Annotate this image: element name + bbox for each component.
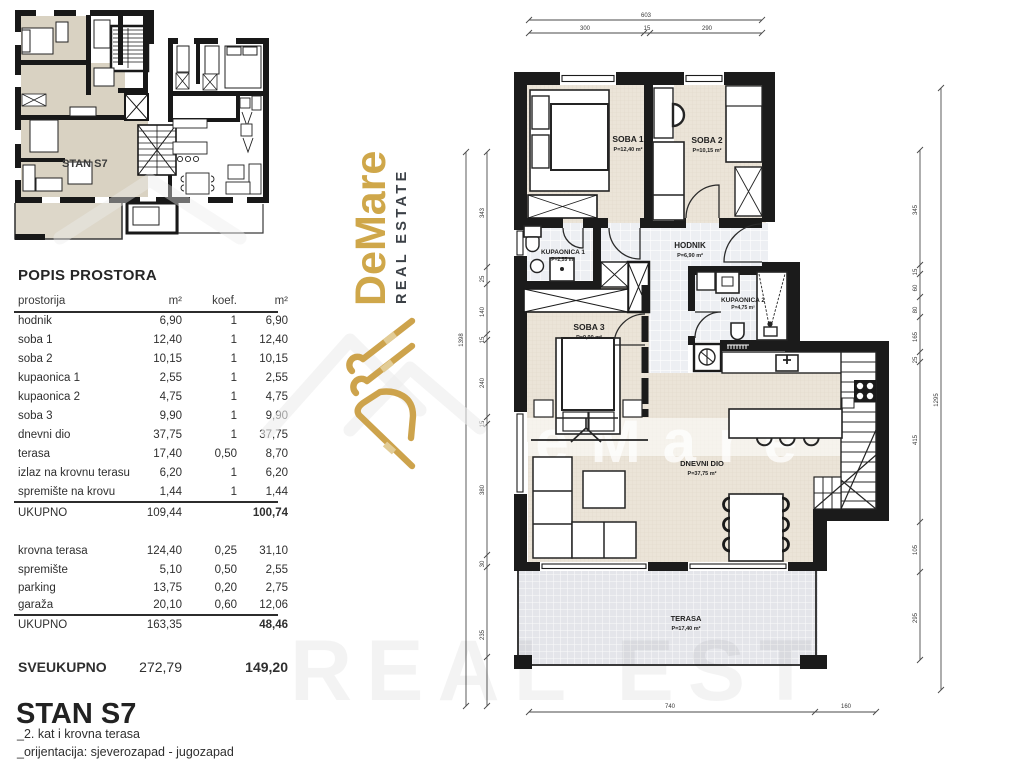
- svg-text:290: 290: [702, 26, 713, 32]
- svg-text:P=12,40 m²: P=12,40 m²: [614, 146, 643, 153]
- svg-text:15: 15: [480, 336, 486, 343]
- svg-text:SOBA 3: SOBA 3: [573, 322, 605, 332]
- svg-text:SOBA 2: SOBA 2: [691, 135, 723, 145]
- svg-text:415: 415: [913, 434, 919, 445]
- svg-text:REAL ESTATE: REAL ESTATE: [394, 168, 410, 304]
- svg-text:P=6,90 m²: P=6,90 m²: [677, 252, 703, 259]
- svg-text:HODNIK: HODNIK: [674, 241, 706, 250]
- svg-text:300: 300: [580, 26, 591, 32]
- svg-text:KUPAONICA 2: KUPAONICA 2: [721, 297, 765, 304]
- svg-text:240: 240: [480, 377, 486, 388]
- svg-text:TERASA: TERASA: [671, 614, 702, 623]
- svg-text:P=9,90 m²: P=9,90 m²: [576, 334, 602, 341]
- svg-text:80: 80: [913, 306, 919, 313]
- svg-text:30: 30: [480, 560, 486, 567]
- svg-text:STAN S7: STAN S7: [62, 158, 108, 170]
- svg-text:25: 25: [913, 356, 919, 363]
- svg-text:15: 15: [913, 268, 919, 275]
- svg-text:140: 140: [480, 306, 486, 317]
- svg-text:P=10,15 m²: P=10,15 m²: [693, 147, 722, 154]
- svg-text:380: 380: [480, 484, 486, 495]
- svg-text:1295: 1295: [934, 393, 940, 407]
- svg-text:15: 15: [644, 26, 651, 32]
- svg-text:P=2,55 m²: P=2,55 m²: [551, 257, 575, 263]
- svg-text:160: 160: [841, 704, 852, 710]
- svg-text:345: 345: [913, 204, 919, 215]
- svg-text:P=4,75 m²: P=4,75 m²: [731, 305, 755, 311]
- svg-text:165: 165: [913, 331, 919, 342]
- svg-text:60: 60: [913, 284, 919, 291]
- svg-text:295: 295: [913, 612, 919, 623]
- svg-text:DNEVNI DIO: DNEVNI DIO: [680, 459, 724, 468]
- svg-text:SOBA 1: SOBA 1: [612, 134, 644, 144]
- svg-text:603: 603: [641, 13, 652, 19]
- svg-text:105: 105: [913, 544, 919, 555]
- svg-text:343: 343: [480, 207, 486, 218]
- svg-text:KUPAONICA 1: KUPAONICA 1: [541, 249, 585, 256]
- svg-text:REAL EST: REAL EST: [290, 623, 826, 719]
- svg-text:DeMare: DeMare: [347, 151, 395, 306]
- svg-text:P=37,75 m²: P=37,75 m²: [688, 470, 717, 477]
- svg-text:25: 25: [480, 275, 486, 282]
- svg-text:1398: 1398: [459, 333, 465, 347]
